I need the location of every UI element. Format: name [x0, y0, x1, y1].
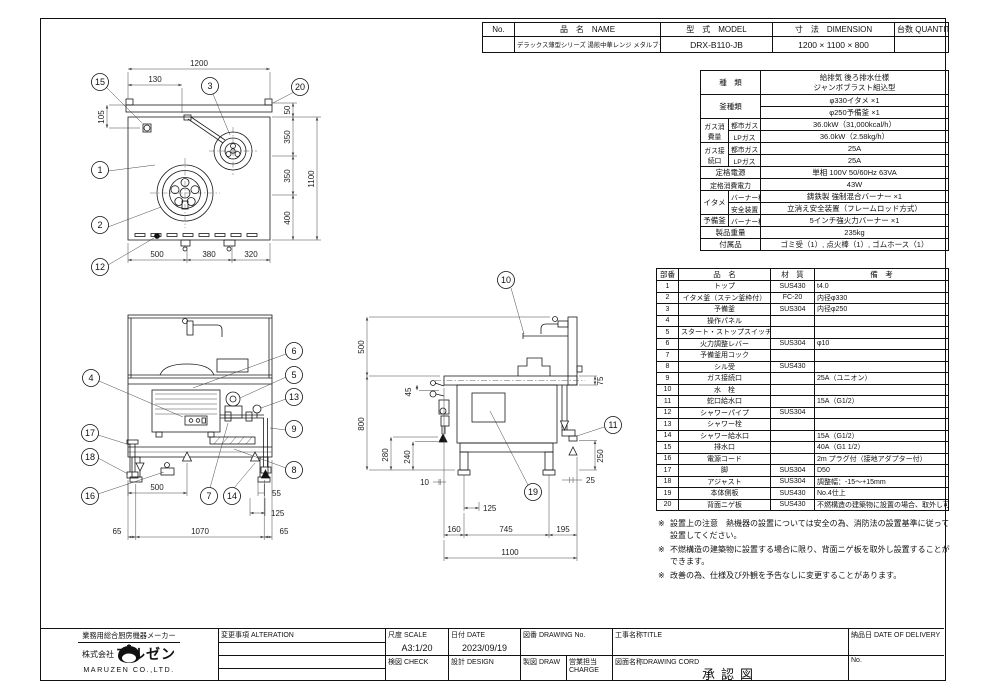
spec-lp-gas-label2: LPガス [729, 155, 761, 167]
spec-weight-value: 235kg [761, 227, 949, 239]
balloon-17-label: 17 [85, 428, 95, 438]
balloon-7: 7 [201, 488, 218, 505]
balloon-18-label: 18 [85, 452, 95, 462]
dim-label-105: 105 [97, 110, 106, 124]
parts-table-row: 7 予備釜用コック [657, 350, 949, 362]
part-note: 内径φ250 [815, 304, 949, 316]
balloon-1-label: 1 [97, 165, 102, 175]
dim-label-side-1100: 1100 [501, 548, 519, 557]
spec-wattage-value: 43W [761, 179, 949, 191]
alteration-divider [219, 668, 385, 669]
part-material [771, 350, 815, 362]
spec-type-value: 給排気 後ろ排水仕様ジャンボブラスト組込型 [761, 71, 949, 95]
part-name: イタメ釜（ステン釜枠付） [679, 292, 771, 304]
balloon-11-label: 11 [608, 420, 617, 430]
title-cell: 工事名称TITLE [612, 629, 848, 655]
alteration-divider [219, 655, 385, 656]
alteration-label: 変更事項 ALTERATION [221, 630, 294, 640]
balloon-3-label: 3 [207, 81, 212, 91]
part-material [771, 396, 815, 408]
part-name: 操作パネル [679, 315, 771, 327]
part-note: 内径φ330 [815, 292, 949, 304]
charge-cell: 営業担当CHARGE [566, 655, 612, 681]
balloon-2: 2 [92, 217, 109, 234]
part-material: SUS430 [771, 281, 815, 293]
part-note [815, 384, 949, 396]
balloon-2-label: 2 [97, 220, 102, 230]
parts-table-row: 2 イタメ釜（ステン釜枠付） FC-20 内径φ330 [657, 292, 949, 304]
drawing-no-cell: 図番 DRAWING No. [520, 629, 612, 655]
parts-table-row: 8 シル受 SUS430 [657, 361, 949, 373]
balloon-12: 12 [92, 259, 109, 276]
scale-label: 尺度 SCALE [388, 630, 427, 640]
spec-connection-city: 25A [761, 143, 949, 155]
dim-label-side-195: 195 [556, 525, 570, 534]
part-note [815, 419, 949, 431]
spec-lp-gas-label: LPガス [729, 131, 761, 143]
date-label: 日付 DATE [451, 630, 485, 640]
header-table: No. 品 名 NAME 型 式 MODEL 寸 法 DIMENSION 台数 … [482, 22, 949, 53]
scale-cell: 尺度 SCALE A3:1/20 [385, 629, 448, 655]
maruzen-logo-icon [116, 644, 142, 664]
balloon-5: 5 [286, 367, 303, 384]
spec-type-label: 種 類 [701, 71, 761, 95]
dim-label-front-65l: 65 [113, 527, 122, 536]
side-view-drawing: 500 800 45 280 240 75 250 10 125 25 160 … [345, 270, 665, 580]
quantity-value [895, 37, 949, 53]
balloon-15-label: 15 [95, 77, 105, 87]
part-material: FC-20 [771, 292, 815, 304]
balloon-16: 16 [82, 488, 99, 505]
part-material: SUS304 [771, 338, 815, 350]
balloon-20-label: 20 [295, 82, 305, 92]
dim-label-50: 50 [283, 105, 292, 114]
balloon-9: 9 [286, 421, 303, 438]
balloon-7-label: 7 [206, 491, 211, 501]
parts-table-row: 3 予備釜 SUS304 内径φ250 [657, 304, 949, 316]
check-cell: 検図 CHECK [385, 655, 448, 681]
dim-label-380: 380 [202, 250, 216, 259]
part-name: 火力調整レバー [679, 338, 771, 350]
part-material: SUS430 [771, 499, 815, 511]
part-material [771, 419, 815, 431]
parts-table-row: 10 水 栓 [657, 384, 949, 396]
delivery-no-cell: No. [848, 655, 944, 681]
note-text: 不燃構造の建築物に設置する場合に限り、背面ニゲ板を取外し設置することができます。 [670, 544, 950, 567]
part-name: スタート・ストップスイッチ [679, 327, 771, 339]
parts-table-row: 9 ガス接続口 25A（ユニオン） [657, 373, 949, 385]
parts-table-row: 14 シャワー給水口 15A（G1/2） [657, 430, 949, 442]
part-material [771, 373, 815, 385]
part-name: 電源コード [679, 453, 771, 465]
dim-label-500: 500 [150, 250, 164, 259]
dim-label-front-65r: 65 [280, 527, 289, 536]
balloon-9-label: 9 [291, 424, 296, 434]
balloon-16-label: 16 [85, 491, 95, 501]
delivery-label: 納品日 DATE OF DELIVERY [851, 630, 940, 640]
header-name-label: 品 名 NAME [515, 23, 661, 37]
spec-city-gas-label: 都市ガス [729, 119, 761, 131]
dim-label-side-25: 25 [586, 476, 595, 485]
dim-label-side-500: 500 [357, 340, 366, 354]
part-material [771, 315, 815, 327]
parts-table-row: 12 シャワーパイプ SUS304 [657, 407, 949, 419]
balloon-13: 13 [286, 389, 303, 406]
dim-label-side-160: 160 [447, 525, 461, 534]
part-name: 脚 [679, 465, 771, 477]
balloon-13-label: 13 [289, 392, 299, 402]
part-material [771, 453, 815, 465]
balloon-14: 14 [224, 488, 241, 505]
check-label: 検図 CHECK [388, 657, 428, 667]
balloon-10: 10 [498, 272, 515, 289]
spec-itame-burner-label: バーナー種類 [729, 191, 761, 203]
spec-table: 種 類 給排気 後ろ排水仕様ジャンボブラスト組込型 釜種類 φ330イタメ ×1… [700, 70, 949, 251]
part-note: No.4仕上 [815, 488, 949, 500]
parts-header-note: 備 考 [815, 269, 949, 281]
parts-table-row: 11 蛇口給水口 15A（G1/2） [657, 396, 949, 408]
dim-label-400: 400 [283, 211, 292, 225]
part-material [771, 384, 815, 396]
part-material [771, 430, 815, 442]
company-cell: 業務用総合厨房機器メーカー 株式会社マルゼン MARUZEN CO.,LTD. [40, 629, 218, 681]
balloon-4: 4 [83, 370, 100, 387]
balloon-8: 8 [286, 462, 303, 479]
part-material [771, 327, 815, 339]
part-note: D50 [815, 465, 949, 477]
side-body-outline [430, 317, 582, 476]
dim-label-front-1070: 1070 [191, 527, 209, 536]
part-name: 予備釜用コック [679, 350, 771, 362]
balloon-19-label: 19 [528, 487, 538, 497]
balloon-15: 15 [92, 74, 109, 91]
header-no-value [483, 37, 515, 53]
part-note [815, 315, 949, 327]
dim-label-side-745: 745 [499, 525, 513, 534]
parts-header-name: 品 名 [679, 269, 771, 281]
part-note [815, 407, 949, 419]
dim-label-front-55: 55 [272, 489, 281, 498]
part-note: 2m プラグ付（接地アダプター付） [815, 453, 949, 465]
part-material: SUS304 [771, 407, 815, 419]
spec-safety-value: 立消え安全装置（フレームロッド方式） [761, 203, 949, 215]
dim-label-side-75: 75 [596, 376, 605, 385]
dim-label-350a: 350 [283, 130, 292, 144]
spec-city-gas-label2: 都市ガス [729, 143, 761, 155]
balloon-12-label: 12 [95, 262, 105, 272]
parts-table-row: 17 脚 SUS304 D50 [657, 465, 949, 477]
spec-accessory-value: ゴミ受（1）, 点火棒（1）, ゴムホース（1） [761, 239, 949, 251]
plan-balloons: 15 3 20 1 2 12 [92, 74, 309, 276]
dim-label-1200: 1200 [190, 59, 208, 68]
company-name-en: MARUZEN CO.,LTD. [40, 665, 218, 674]
part-name: 蛇口給水口 [679, 396, 771, 408]
part-note [815, 327, 949, 339]
part-name: 水 栓 [679, 384, 771, 396]
date-cell: 日付 DATE 2023/09/19 [448, 629, 520, 655]
drawing-sheet: No. 品 名 NAME 型 式 MODEL 寸 法 DIMENSION 台数 … [0, 0, 988, 699]
note-item: ※ 設置上の注意 熱機器の設置については安全の為、消防法の設置基準に従って設置し… [658, 518, 950, 541]
spec-accessory-label: 付属品 [701, 239, 761, 251]
front-body-outline [127, 315, 272, 482]
spec-yobi-label: 予備釜 [701, 215, 729, 227]
spec-wattage-label: 定格消費電力 [701, 179, 761, 191]
draw-label: 製図 DRAW [523, 657, 560, 667]
draw-cell: 製図 DRAW [520, 655, 566, 681]
spec-kama-value1: φ330イタメ ×1 [761, 95, 949, 107]
spec-type-line2: ジャンボブラスト組込型 [814, 83, 896, 92]
spec-type-line1: 給排気 後ろ排水仕様 [820, 73, 890, 82]
header-no-label: No. [483, 23, 515, 37]
dim-label-side-10: 10 [420, 478, 429, 487]
company-prefix: 株式会社 [82, 649, 114, 660]
front-view-drawing: 500 55 125 65 1070 65 4 6 5 13 9 17 18 8… [60, 295, 345, 560]
spec-weight-label: 製品重量 [701, 227, 761, 239]
drawing-no-label: 図番 DRAWING No. [523, 630, 585, 640]
spec-itame-burner-value: 鋳鉄製 強制混合バーナー ×1 [761, 191, 949, 203]
dim-label-side-250: 250 [596, 449, 605, 463]
delivery-no-label: No. [851, 657, 862, 664]
part-material: SUS304 [771, 304, 815, 316]
main-burner-centerlines [150, 127, 257, 228]
part-name: 予備釜 [679, 304, 771, 316]
delivery-cell: 納品日 DATE OF DELIVERY [848, 629, 944, 655]
header-quantity-label: 台数 QUANTITY [895, 23, 949, 37]
spec-power-value: 単相 100V 50/60Hz 63VA [761, 167, 949, 179]
part-material: SUS430 [771, 361, 815, 373]
part-note: 25A（ユニオン） [815, 373, 949, 385]
part-name: トップ [679, 281, 771, 293]
parts-table: 部番 品 名 材 質 備 考 1 トップ SUS430 t4.0 2 イタメ釜（… [656, 268, 949, 511]
spec-consumption-lp: 36.0kW（2.58kg/h） [761, 131, 949, 143]
part-name: シャワーパイプ [679, 407, 771, 419]
balloon-18: 18 [82, 449, 99, 466]
part-note: 40A（G1 1/2） [815, 442, 949, 454]
dim-label-front-125: 125 [271, 509, 285, 518]
part-note: 15A（G1/2） [815, 430, 949, 442]
balloon-3: 3 [202, 78, 219, 95]
title-label: 工事名称TITLE [615, 630, 662, 640]
dim-label-side-800: 800 [357, 417, 366, 431]
parts-table-row: 13 シャワー栓 [657, 419, 949, 431]
dim-label-side-280: 280 [381, 448, 390, 462]
drawing-cord-cell: 図面名称DRAWING CORD 承認図 [612, 655, 848, 681]
parts-header-material: 材 質 [771, 269, 815, 281]
part-note: φ10 [815, 338, 949, 350]
spec-consumption-city: 36.0kW（31,000kcal/h） [761, 119, 949, 131]
part-note [815, 361, 949, 373]
design-label: 設計 DESIGN [451, 657, 494, 667]
spec-gas-connection-label: ガス接続口 [701, 143, 729, 167]
balloon-1: 1 [92, 162, 109, 179]
dim-label-130: 130 [148, 75, 162, 84]
balloon-8-label: 8 [291, 465, 296, 475]
dim-label-side-240: 240 [403, 450, 412, 464]
balloon-19: 19 [525, 484, 542, 501]
part-note [815, 350, 949, 362]
part-name: シャワー給水口 [679, 430, 771, 442]
dim-label-front-500: 500 [150, 483, 164, 492]
parts-table-row: 20 背面ニゲ板 SUS430 不燃構造の建築物に設置の場合、取外し可 [657, 499, 949, 511]
part-name: アジャスト [679, 476, 771, 488]
part-note: t4.0 [815, 281, 949, 293]
balloon-10-label: 10 [501, 275, 511, 285]
spec-gas-consumption-label: ガス消費量 [701, 119, 729, 143]
note-item: ※ 改善の為、仕様及び外観を予告なしに変更することがあります。 [658, 570, 950, 582]
parts-table-row: 5 スタート・ストップスイッチ [657, 327, 949, 339]
dim-label-350b: 350 [283, 169, 292, 183]
part-name: 排水口 [679, 442, 771, 454]
part-name: ガス接続口 [679, 373, 771, 385]
product-name: デラックス薄型シリーズ 湯煎中華レンジ メタルブラスト/ジャンボブラスト組込型 [515, 37, 661, 53]
part-note: 不燃構造の建築物に設置の場合、取外し可 [815, 499, 949, 511]
charge-label: 営業担当CHARGE [569, 657, 612, 674]
balloon-5-label: 5 [291, 370, 296, 380]
note-item: ※ 不燃構造の建築物に設置する場合に限り、背面ニゲ板を取外し設置することができま… [658, 544, 950, 567]
title-block: 業務用総合厨房機器メーカー 株式会社マルゼン MARUZEN CO.,LTD. … [40, 628, 944, 681]
parts-table-row: 16 電源コード 2m プラグ付（接地アダプター付） [657, 453, 949, 465]
part-name: シル受 [679, 361, 771, 373]
dim-label-side-125: 125 [483, 504, 497, 513]
balloon-6-label: 6 [291, 346, 296, 356]
spec-safety-label: 安全装置 [729, 203, 761, 215]
spec-power-label: 定格電源 [701, 167, 761, 179]
spec-connection-lp: 25A [761, 155, 949, 167]
note-text: 設置上の注意 熱機器の設置については安全の為、消防法の設置基準に従って設置してく… [670, 518, 950, 541]
spec-kama-value2: φ250予備釜 ×1 [761, 107, 949, 119]
spec-yobi-burner-label: バーナー種類 [729, 215, 761, 227]
product-dimensions: 1200 × 1100 × 800 [773, 37, 895, 53]
balloon-20: 20 [292, 79, 309, 96]
design-cell: 設計 DESIGN [448, 655, 520, 681]
part-name: 背面ニゲ板 [679, 499, 771, 511]
plan-view-drawing: 1200 130 105 50 350 350 400 1100 500 380… [85, 55, 350, 290]
parts-table-row: 4 操作パネル [657, 315, 949, 327]
date-value: 2023/09/19 [449, 643, 520, 653]
model-number: DRX-B110-JB [661, 37, 773, 53]
alteration-divider [219, 642, 385, 643]
spec-itame-label: イタメ [701, 191, 729, 215]
part-material [771, 442, 815, 454]
parts-table-row: 1 トップ SUS430 t4.0 [657, 281, 949, 293]
parts-table-row: 6 火力調整レバー SUS304 φ10 [657, 338, 949, 350]
note-text: 改善の為、仕様及び外観を予告なしに変更することがあります。 [670, 570, 901, 582]
parts-table-row: 19 本体側板 SUS430 No.4仕上 [657, 488, 949, 500]
parts-table-header: 部番 品 名 材 質 備 考 [657, 269, 949, 281]
part-name: 本体側板 [679, 488, 771, 500]
part-note: 調整幅：-15～+15mm [815, 476, 949, 488]
spec-yobi-burner-value: 5インチ強火力バーナー ×1 [761, 215, 949, 227]
spec-kama-label: 釜種類 [701, 95, 761, 119]
balloon-6: 6 [286, 343, 303, 360]
part-material: SUS304 [771, 465, 815, 477]
header-dimension-label: 寸 法 DIMENSION [773, 23, 895, 37]
part-note: 15A（G1/2） [815, 396, 949, 408]
balloon-14-label: 14 [227, 491, 237, 501]
company-tagline: 業務用総合厨房機器メーカー [78, 631, 179, 643]
parts-table-row: 18 アジャスト SUS304 調整幅：-15～+15mm [657, 476, 949, 488]
balloon-11: 11 [605, 417, 622, 434]
notes-list: ※ 設置上の注意 熱機器の設置については安全の為、消防法の設置基準に従って設置し… [658, 518, 950, 585]
dim-label-1100: 1100 [307, 170, 316, 188]
parts-table-row: 15 排水口 40A（G1 1/2） [657, 442, 949, 454]
part-material: SUS430 [771, 488, 815, 500]
dim-label-side-45: 45 [404, 387, 413, 396]
scale-value: A3:1/20 [386, 643, 448, 653]
alteration-cell: 変更事項 ALTERATION [218, 629, 385, 681]
part-name: シャワー栓 [679, 419, 771, 431]
header-model-label: 型 式 MODEL [661, 23, 773, 37]
dim-label-320: 320 [244, 250, 258, 259]
balloon-4-label: 4 [88, 373, 93, 383]
drawing-name-value: 承認図 [613, 664, 848, 683]
front-dimension-labels: 500 55 125 65 1070 65 [113, 483, 289, 536]
part-material: SUS304 [771, 476, 815, 488]
balloon-17: 17 [82, 425, 99, 442]
